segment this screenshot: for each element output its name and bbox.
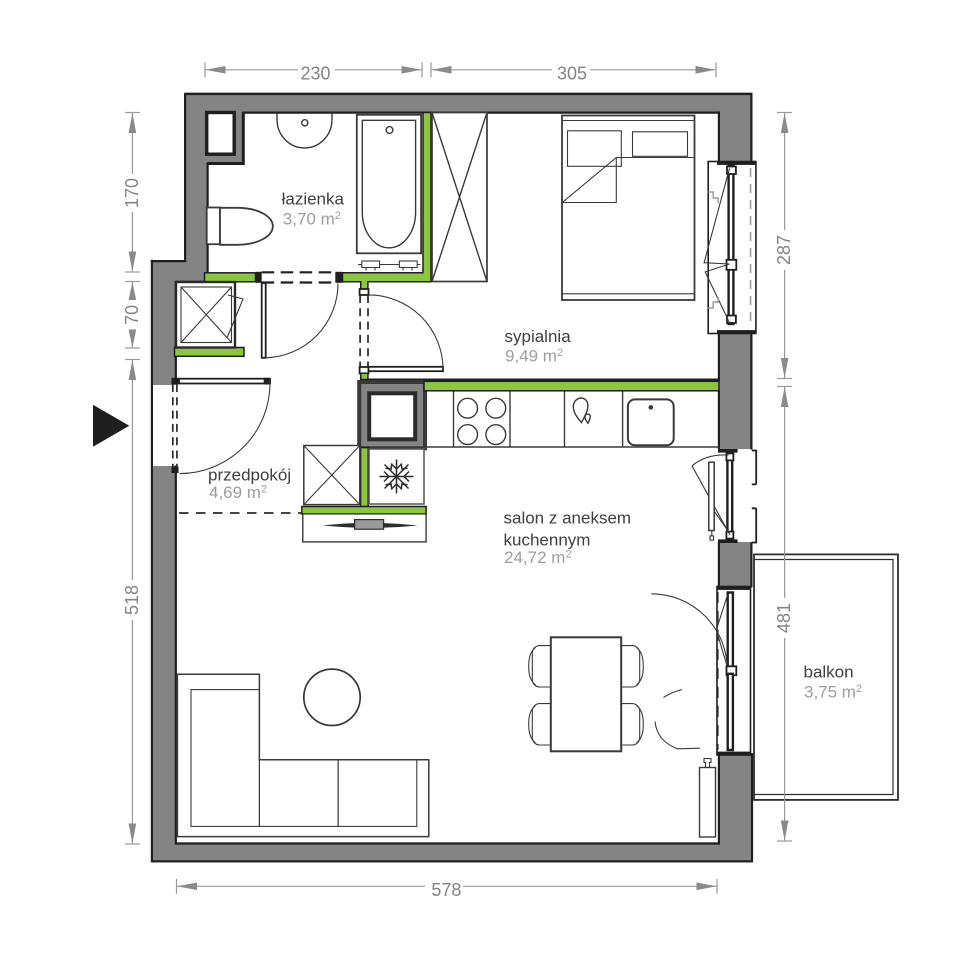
- svg-text:24,72 m2: 24,72 m2: [504, 548, 572, 567]
- svg-text:518: 518: [122, 585, 142, 615]
- svg-text:578: 578: [431, 880, 461, 900]
- svg-text:170: 170: [122, 178, 142, 208]
- svg-text:3,70 m2: 3,70 m2: [283, 209, 341, 228]
- svg-text:łazienka: łazienka: [282, 189, 345, 208]
- svg-text:3,75 m2: 3,75 m2: [804, 683, 862, 702]
- svg-text:287: 287: [774, 235, 794, 265]
- svg-text:przedpokój: przedpokój: [208, 466, 291, 485]
- svg-text:4,69 m2: 4,69 m2: [209, 483, 267, 502]
- svg-text:305: 305: [557, 63, 587, 83]
- svg-text:kuchennym: kuchennym: [504, 531, 591, 550]
- svg-text:9,49 m2: 9,49 m2: [505, 347, 563, 366]
- svg-text:salon z aneksem: salon z aneksem: [504, 509, 632, 528]
- svg-text:70: 70: [122, 305, 142, 325]
- svg-text:481: 481: [774, 603, 794, 633]
- svg-text:sypialnia: sypialnia: [505, 327, 572, 346]
- svg-text:230: 230: [300, 63, 330, 83]
- svg-text:balkon: balkon: [804, 663, 854, 682]
